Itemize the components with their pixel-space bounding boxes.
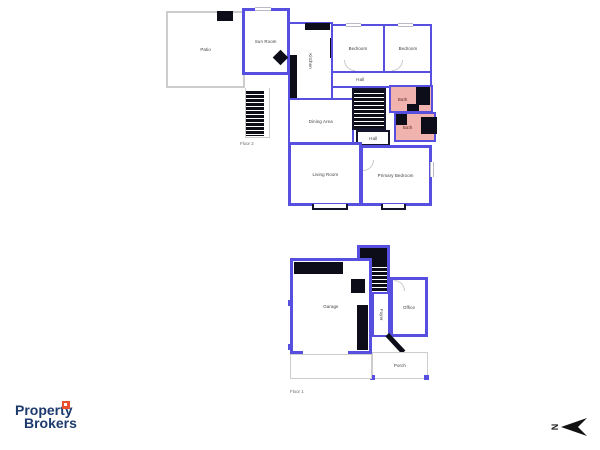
room-label-bedroom-left: Bedroom xyxy=(349,46,368,51)
interior-stairs-floor1 xyxy=(372,264,387,293)
bath-lower-shower xyxy=(396,114,407,125)
room-label-garage: Garage xyxy=(323,304,338,309)
room-label-sun-room: Sun Room xyxy=(255,39,277,44)
room-bedroom-right: Bedroom xyxy=(383,24,432,73)
kitchen-counter-left xyxy=(290,55,297,98)
garage-utility-box xyxy=(351,279,365,293)
room-label-hall-lower: Hall xyxy=(369,136,377,141)
room-label-living: Living Room xyxy=(312,172,338,177)
room-label-foyer: Foyer xyxy=(379,309,384,321)
garage-wall-post xyxy=(288,344,293,350)
room-dining: Dining Area xyxy=(288,98,354,144)
bath-upper-vanity xyxy=(416,87,430,105)
logo-house-mark-icon xyxy=(62,401,70,409)
room-bedroom-left: Bedroom xyxy=(331,24,385,73)
room-label-porch: Porch xyxy=(394,363,406,368)
patio-grill xyxy=(217,11,233,21)
living-bay-window xyxy=(312,204,348,210)
room-label-patio: Patio xyxy=(200,47,211,52)
garage-wall-post xyxy=(288,300,293,306)
garage-utility-bar xyxy=(357,305,368,350)
room-label-bath-lower: Bath xyxy=(403,125,412,130)
bedroom-left-window xyxy=(346,23,361,27)
room-label-office: Office xyxy=(403,305,415,310)
sunroom-window xyxy=(255,7,271,11)
kitchen-counter-top xyxy=(305,23,330,30)
bedroom-right-window xyxy=(398,23,413,27)
floor1-caption: Floor 1 xyxy=(290,389,304,394)
primary-window xyxy=(430,162,434,177)
room-label-primary-bedroom: Primary Bedroom xyxy=(378,173,414,178)
room-sun-room: Sun Room xyxy=(242,8,290,75)
room-label-hall-upper: Hall xyxy=(356,77,364,82)
compass: N xyxy=(551,418,587,436)
room-living: Living Room xyxy=(288,142,362,206)
room-label-bath-upper: Bath xyxy=(398,97,407,102)
porch-post xyxy=(424,375,429,380)
compass-north-letter: N xyxy=(549,424,559,431)
primary-bay-window xyxy=(381,204,406,210)
driveway-pad xyxy=(290,354,372,379)
room-porch: Porch xyxy=(372,352,428,379)
bath-lower-tub xyxy=(421,117,437,134)
room-foyer: Foyer xyxy=(372,292,390,337)
garage-workbench xyxy=(294,262,343,274)
logo-line2: Brokers xyxy=(15,417,77,430)
room-label-bedroom-right: Bedroom xyxy=(398,46,417,51)
bath-upper-toilet xyxy=(407,104,419,111)
exterior-stairs xyxy=(246,91,264,136)
north-arrow-icon xyxy=(561,418,587,436)
room-patio: Patio xyxy=(166,11,245,88)
room-label-dining: Dining Area xyxy=(309,119,333,124)
interior-stairs-floor2 xyxy=(352,88,386,130)
room-primary-bedroom: Primary Bedroom xyxy=(360,145,432,206)
floor-plan-page: Patio Sun Room Kitchen Bedroom Bedroom xyxy=(0,0,600,450)
room-label-kitchen: Kitchen xyxy=(308,53,313,68)
floor2-caption: Floor 2 xyxy=(240,141,254,146)
